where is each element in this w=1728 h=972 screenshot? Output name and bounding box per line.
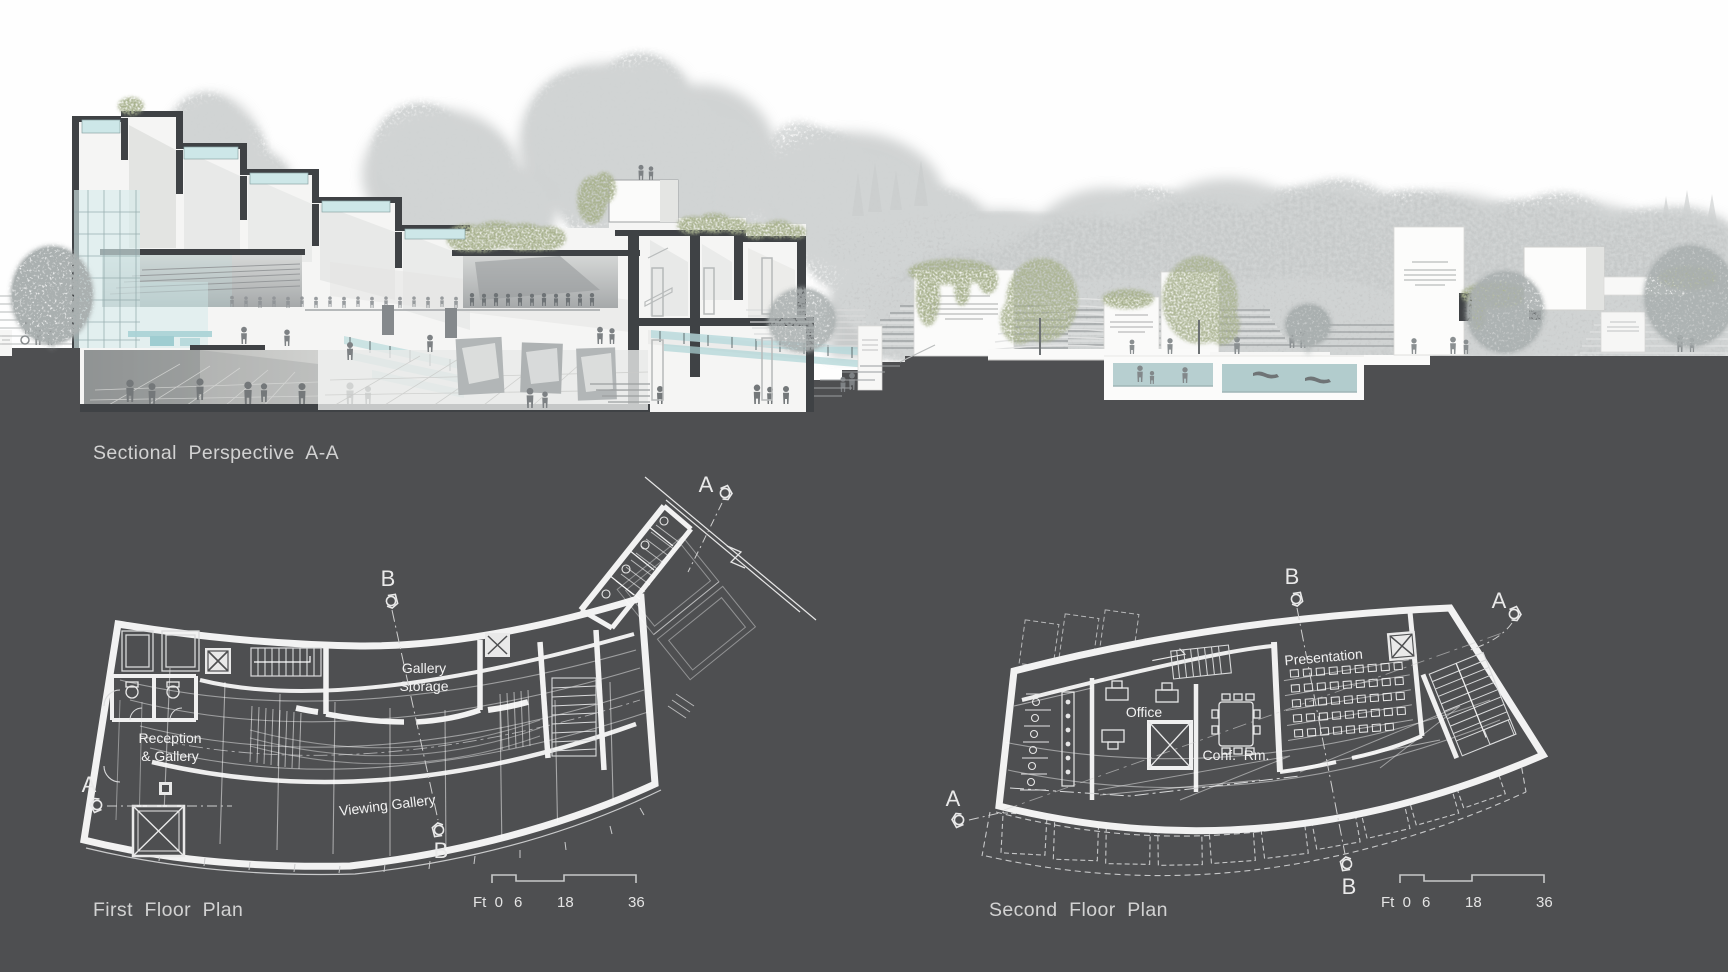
svg-text:A: A xyxy=(946,786,961,811)
svg-text:Sectional Perspective A-A: Sectional Perspective A-A xyxy=(93,442,339,464)
svg-text:First Floor Plan: First Floor Plan xyxy=(93,899,243,921)
svg-text:A: A xyxy=(699,472,714,497)
svg-text:B: B xyxy=(434,838,449,863)
svg-text:18: 18 xyxy=(557,894,574,911)
svg-text:Second Floor Plan: Second Floor Plan xyxy=(989,899,1168,921)
svg-text:Gallery: Gallery xyxy=(402,660,446,676)
svg-text:36: 36 xyxy=(1536,894,1553,911)
svg-text:36: 36 xyxy=(628,894,645,911)
svg-text:6: 6 xyxy=(514,894,522,911)
svg-text:B: B xyxy=(1342,874,1357,899)
svg-text:B: B xyxy=(1285,564,1300,589)
svg-text:A: A xyxy=(82,772,97,797)
svg-text:Office: Office xyxy=(1126,704,1163,720)
svg-text:Ft 0: Ft 0 xyxy=(473,894,503,911)
svg-text:Conf. Rm.: Conf. Rm. xyxy=(1203,747,1270,763)
svg-text:Storage: Storage xyxy=(399,678,448,694)
svg-text:& Gallery: & Gallery xyxy=(141,748,199,764)
svg-text:B: B xyxy=(381,566,396,591)
svg-text:Reception: Reception xyxy=(138,730,201,746)
svg-text:Ft 0: Ft 0 xyxy=(1381,894,1411,911)
svg-text:6: 6 xyxy=(1422,894,1430,911)
svg-text:A: A xyxy=(1492,588,1507,613)
svg-text:18: 18 xyxy=(1465,894,1482,911)
